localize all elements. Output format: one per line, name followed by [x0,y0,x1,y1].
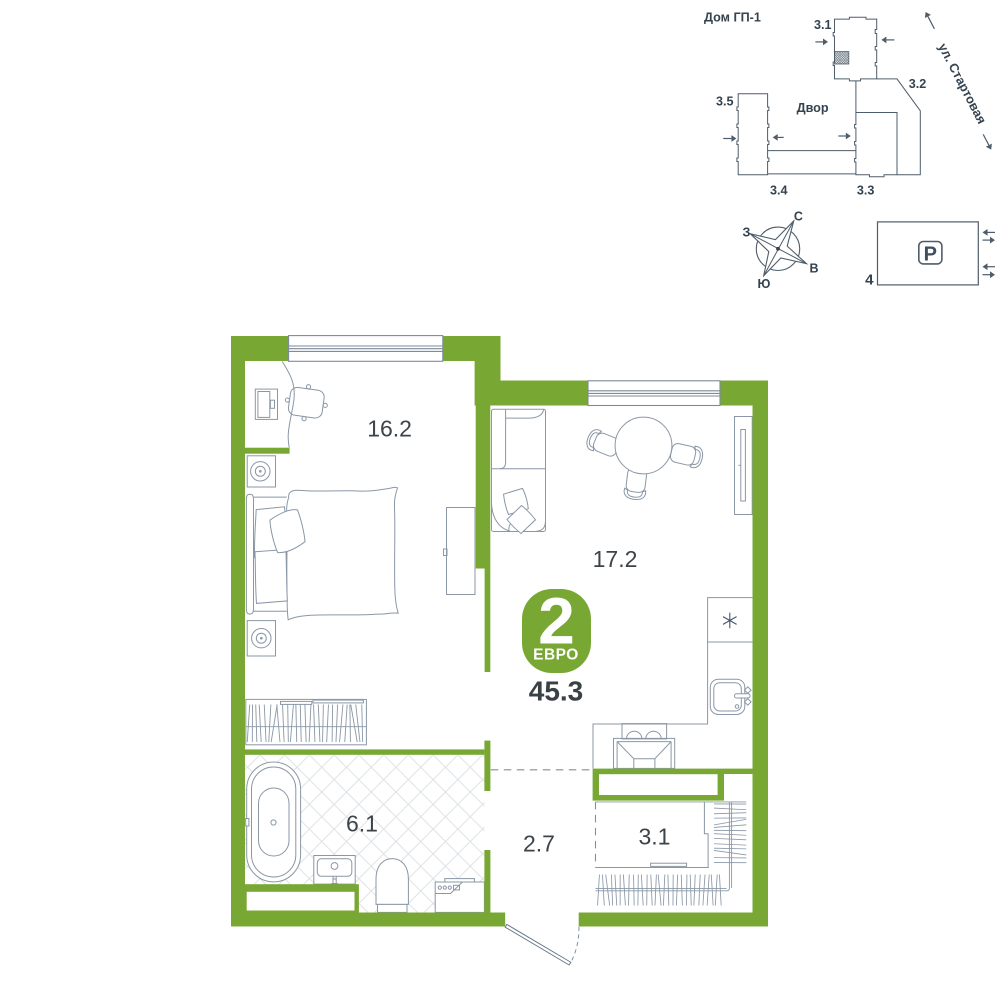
svg-text:6.1: 6.1 [346,811,378,837]
svg-text:В: В [809,261,818,275]
svg-text:4: 4 [865,271,874,288]
svg-text:ЕВРО: ЕВРО [533,647,579,664]
svg-text:С: С [794,209,803,223]
svg-text:17.2: 17.2 [593,546,638,572]
svg-text:ул. Стартовая: ул. Стартовая [935,41,989,127]
svg-text:З: З [742,226,750,240]
svg-text:45.3: 45.3 [529,676,584,707]
svg-text:3.2: 3.2 [909,77,927,91]
svg-text:3.1: 3.1 [639,824,671,850]
svg-text:3.4: 3.4 [770,184,788,198]
svg-text:Ю: Ю [758,277,771,291]
svg-text:2.7: 2.7 [523,831,555,857]
svg-text:3.3: 3.3 [857,184,875,198]
svg-text:3.1: 3.1 [814,18,832,32]
svg-text:3.5: 3.5 [716,95,734,109]
svg-text:Двор: Двор [797,101,829,115]
svg-text:P: P [924,243,937,265]
svg-text:Дом ГП-1: Дом ГП-1 [704,11,761,25]
svg-text:16.2: 16.2 [367,416,412,442]
